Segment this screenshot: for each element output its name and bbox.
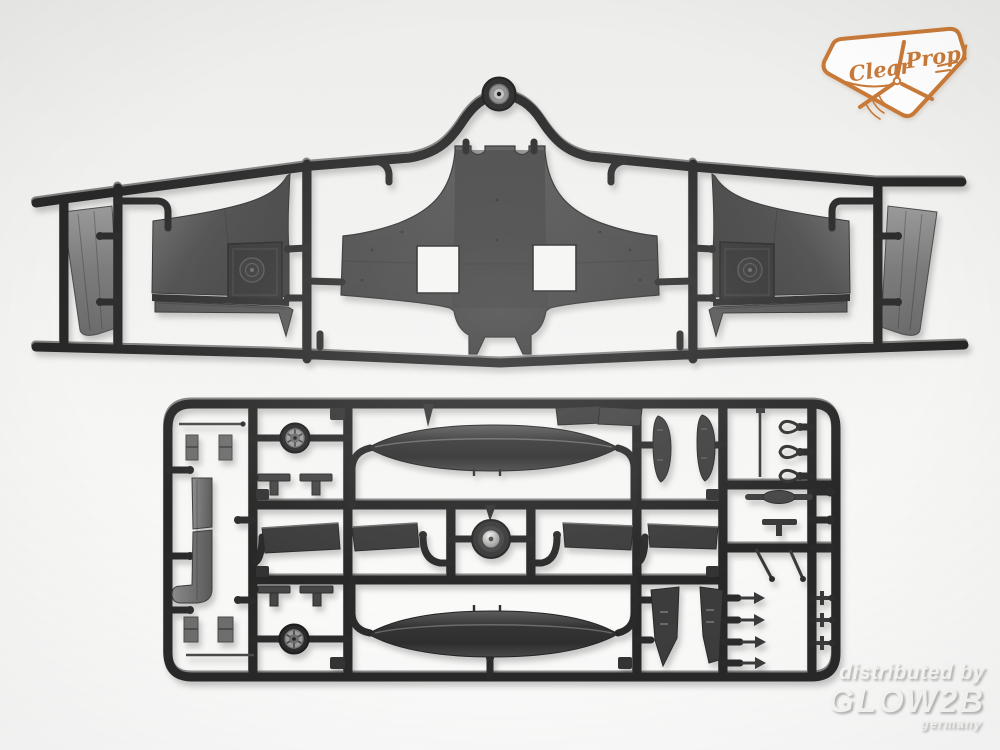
- flap-panel: [352, 523, 419, 551]
- tail-wheel: [483, 78, 516, 111]
- gate-horn: [485, 505, 496, 521]
- outer-flap-panel-left: [63, 206, 119, 335]
- watermark-line1: distributed by: [839, 661, 986, 684]
- gate-horn: [423, 404, 434, 427]
- photo-canvas: Clear Prop! distributed by GLOW2B german…: [0, 0, 1000, 750]
- strut-parts: [756, 549, 803, 579]
- lever-parts: [740, 592, 766, 669]
- tiny-fittings: [815, 591, 829, 650]
- distributor-watermark: distributed by GLOW2B germany: [828, 661, 986, 731]
- main-wheel-upper: [281, 424, 310, 453]
- flap-panel: [648, 524, 718, 549]
- wing-opening-right: [533, 245, 576, 291]
- brand-badge: Clear Prop!: [824, 29, 973, 119]
- drop-tank-lower: [368, 605, 618, 657]
- bottom-sprue: [168, 402, 837, 677]
- gear-leg-cylinder: [748, 491, 810, 504]
- main-wheel-lower: [280, 625, 309, 654]
- gear-rod: [756, 408, 765, 477]
- watermark-line2: GLOW2B: [828, 682, 985, 719]
- radiator-flap: [598, 407, 642, 426]
- curved-gear-doors: [653, 415, 715, 482]
- flap-panel: [563, 523, 633, 550]
- upper-wing-panel-left: [152, 174, 293, 336]
- radiator-flap: [556, 406, 602, 425]
- watermark-line3: germany: [920, 716, 982, 731]
- spinner-backplate: [472, 520, 510, 558]
- angular-gear-doors: [651, 587, 723, 666]
- fork-parts: [780, 421, 800, 481]
- product-photo: Clear Prop! distributed by GLOW2B german…: [0, 0, 1000, 750]
- drop-tank-upper: [368, 425, 618, 476]
- outer-flap-panel-right: [881, 206, 937, 335]
- top-sprue: [36, 78, 965, 364]
- t-fitting: [762, 519, 797, 536]
- wing-opening-left: [417, 246, 459, 293]
- cowl-strip-j: [172, 478, 212, 603]
- upper-wing-panel-right: [709, 174, 850, 336]
